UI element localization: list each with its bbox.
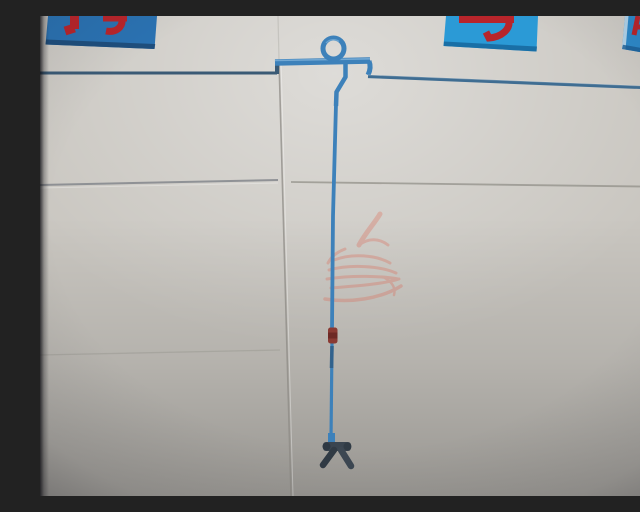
left-edge-shadow [40,16,49,496]
photo-canvas [40,16,640,496]
photo-pipe-on-paneled-wall [40,16,640,496]
vignette [40,16,640,496]
